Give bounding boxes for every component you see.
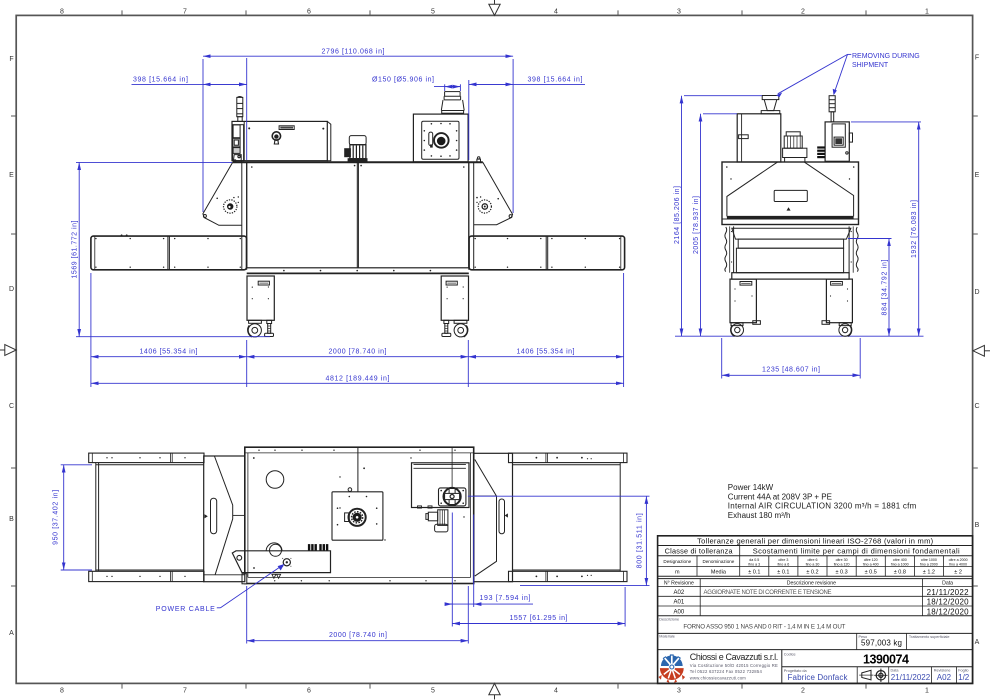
svg-text:A00: A00 — [674, 609, 685, 615]
svg-text:REMOVING DURING: REMOVING DURING — [852, 53, 920, 60]
svg-text:Trattamento superficiale: Trattamento superficiale — [909, 635, 950, 639]
svg-text:Ø150 [Ø5.906 in]: Ø150 [Ø5.906 in] — [372, 76, 434, 83]
svg-text:Data: Data — [891, 668, 900, 672]
svg-text:21/11/2022: 21/11/2022 — [891, 673, 931, 682]
svg-text:± 2: ± 2 — [954, 570, 962, 576]
svg-text:A: A — [975, 639, 980, 646]
svg-text:POWER CABLE: POWER CABLE — [156, 606, 215, 613]
svg-text:fino a 2000: fino a 2000 — [920, 562, 938, 566]
svg-text:D: D — [974, 289, 979, 296]
svg-text:8: 8 — [60, 688, 64, 695]
svg-text:A02: A02 — [937, 673, 952, 682]
svg-text:B: B — [975, 522, 980, 529]
svg-text:1235 [48.607 in]: 1235 [48.607 in] — [762, 366, 820, 373]
svg-text:Revisione: Revisione — [934, 668, 951, 672]
svg-text:D: D — [9, 286, 14, 293]
svg-text:18/12/2020: 18/12/2020 — [927, 608, 970, 617]
svg-text:Codice: Codice — [784, 652, 796, 656]
svg-text:597,003 kg: 597,003 kg — [861, 638, 902, 647]
svg-text:A02: A02 — [674, 590, 685, 596]
svg-text:3: 3 — [677, 688, 681, 695]
svg-text:2000 [78.740 in]: 2000 [78.740 in] — [329, 349, 387, 356]
svg-text:± 0.2: ± 0.2 — [806, 570, 818, 576]
svg-text:Chiossi e Cavazzuti s.r.l.: Chiossi e Cavazzuti s.r.l. — [690, 652, 779, 662]
svg-text:E: E — [975, 172, 980, 179]
svg-text:± 0.8: ± 0.8 — [894, 570, 906, 576]
svg-text:fino a 400: fino a 400 — [863, 562, 879, 566]
svg-text:Data: Data — [942, 580, 953, 586]
svg-text:884 [34.792 in]: 884 [34.792 in] — [881, 259, 888, 315]
svg-text:Descrizione revisione: Descrizione revisione — [787, 580, 836, 586]
svg-text:Classe di tolleranza: Classe di tolleranza — [665, 547, 734, 556]
svg-text:SHIPMENT: SHIPMENT — [852, 62, 889, 69]
svg-text:1932 [76.083 in]: 1932 [76.083 in] — [911, 200, 918, 258]
svg-text:1557 [61.295 in]: 1557 [61.295 in] — [510, 615, 568, 622]
svg-text:B: B — [9, 516, 14, 523]
svg-text:F: F — [9, 56, 13, 63]
svg-text:Media: Media — [711, 570, 727, 576]
svg-text:± 1.2: ± 1.2 — [923, 570, 935, 576]
svg-text:398 [15.664 in]: 398 [15.664 in] — [133, 77, 188, 84]
svg-text:3: 3 — [677, 9, 681, 16]
svg-text:FORNO ASSO 950 1 NAS AND 0 RIT: FORNO ASSO 950 1 NAS AND 0 RIT - 1,4 M I… — [683, 624, 845, 631]
svg-text:A01: A01 — [674, 600, 685, 606]
svg-text:5: 5 — [431, 688, 435, 695]
svg-text:1569 [61.772 in]: 1569 [61.772 in] — [72, 220, 79, 278]
svg-text:1406 [55.354 in]: 1406 [55.354 in] — [140, 349, 198, 356]
svg-text:2164 [85.206 in]: 2164 [85.206 in] — [674, 186, 681, 244]
svg-text:F: F — [975, 55, 979, 62]
svg-text:fino a 30: fino a 30 — [806, 562, 820, 566]
svg-text:1: 1 — [925, 688, 929, 695]
svg-text:fino a 1000: fino a 1000 — [891, 562, 909, 566]
svg-text:950 [37.402 in]: 950 [37.402 in] — [53, 490, 60, 545]
svg-text:fino a 120: fino a 120 — [834, 562, 850, 566]
svg-text:7: 7 — [183, 9, 187, 16]
svg-text:www.chiossiecavazzuti.com: www.chiossiecavazzuti.com — [690, 676, 747, 681]
svg-text:fino a 3: fino a 3 — [748, 562, 760, 566]
svg-text:A: A — [9, 630, 14, 637]
svg-text:Tel 0522 637224 Fax 0522 73285: Tel 0522 637224 Fax 0522 732854 — [690, 669, 763, 674]
svg-text:6: 6 — [307, 9, 311, 16]
svg-text:Scostamenti limite per campi d: Scostamenti limite per campi di dimensio… — [753, 547, 960, 556]
svg-text:C: C — [974, 403, 979, 410]
svg-text:2000 [78.740 in]: 2000 [78.740 in] — [329, 632, 387, 639]
svg-text:Power 14kW: Power 14kW — [728, 483, 774, 492]
svg-text:2796 [110.068 in]: 2796 [110.068 in] — [322, 48, 385, 55]
svg-text:Internal AIR CIRCULATION 3200: Internal AIR CIRCULATION 3200 m³/h = 188… — [728, 502, 917, 511]
svg-text:Via Costituzione 50/D 42015 Co: Via Costituzione 50/D 42015 Correggio RE — [690, 663, 778, 668]
svg-text:fino a 6: fino a 6 — [778, 562, 790, 566]
svg-text:C: C — [9, 403, 14, 410]
svg-text:2005 [78.937 in]: 2005 [78.937 in] — [693, 196, 700, 254]
svg-text:4: 4 — [554, 9, 558, 16]
svg-text:Denominazione: Denominazione — [702, 559, 734, 564]
svg-text:AGGIORNATE NOTE DI CORRENTE E: AGGIORNATE NOTE DI CORRENTE E TENSIONE — [704, 590, 832, 596]
svg-text:± 0.1: ± 0.1 — [748, 570, 760, 576]
svg-text:4: 4 — [554, 688, 558, 695]
svg-text:2: 2 — [801, 688, 805, 695]
svg-text:800 [31.511 in]: 800 [31.511 in] — [637, 513, 644, 568]
svg-text:2: 2 — [801, 9, 805, 16]
svg-text:fino a 4000: fino a 4000 — [949, 562, 967, 566]
svg-text:4812 [189.449 in]: 4812 [189.449 in] — [326, 375, 390, 382]
svg-text:21/11/2022: 21/11/2022 — [927, 588, 970, 597]
svg-text:± 0.1: ± 0.1 — [777, 570, 789, 576]
svg-text:398 [15.664 in]: 398 [15.664 in] — [528, 77, 583, 84]
svg-text:6: 6 — [307, 688, 311, 695]
svg-text:Designazione: Designazione — [663, 559, 691, 564]
svg-text:1390074: 1390074 — [863, 653, 909, 667]
svg-text:N° Revisione: N° Revisione — [664, 580, 694, 586]
svg-text:Descrizione: Descrizione — [659, 618, 679, 622]
svg-text:Fabrice Donfack: Fabrice Donfack — [788, 673, 849, 682]
svg-text:Tolleranze generali per dimens: Tolleranze generali per dimensioni linea… — [697, 536, 934, 545]
svg-text:193 [7.594 in]: 193 [7.594 in] — [480, 595, 531, 602]
svg-text:m: m — [675, 570, 680, 576]
svg-text:7: 7 — [183, 688, 187, 695]
svg-text:18/12/2020: 18/12/2020 — [927, 598, 970, 607]
svg-text:± 0.5: ± 0.5 — [865, 570, 877, 576]
svg-text:1/2: 1/2 — [958, 673, 970, 682]
svg-text:Current 44A at 208V 3P + PE: Current 44A at 208V 3P + PE — [728, 492, 832, 501]
svg-text:Exhaust 180 m³/h: Exhaust 180 m³/h — [728, 511, 791, 520]
svg-text:1406 [55.354 in]: 1406 [55.354 in] — [517, 349, 575, 356]
svg-text:1: 1 — [925, 9, 929, 16]
svg-text:5: 5 — [431, 9, 435, 16]
svg-text:± 0.3: ± 0.3 — [835, 570, 847, 576]
svg-text:8: 8 — [60, 9, 64, 16]
svg-text:Materiale: Materiale — [659, 635, 675, 639]
svg-text:E: E — [9, 172, 14, 179]
svg-text:Foglio: Foglio — [958, 668, 968, 672]
